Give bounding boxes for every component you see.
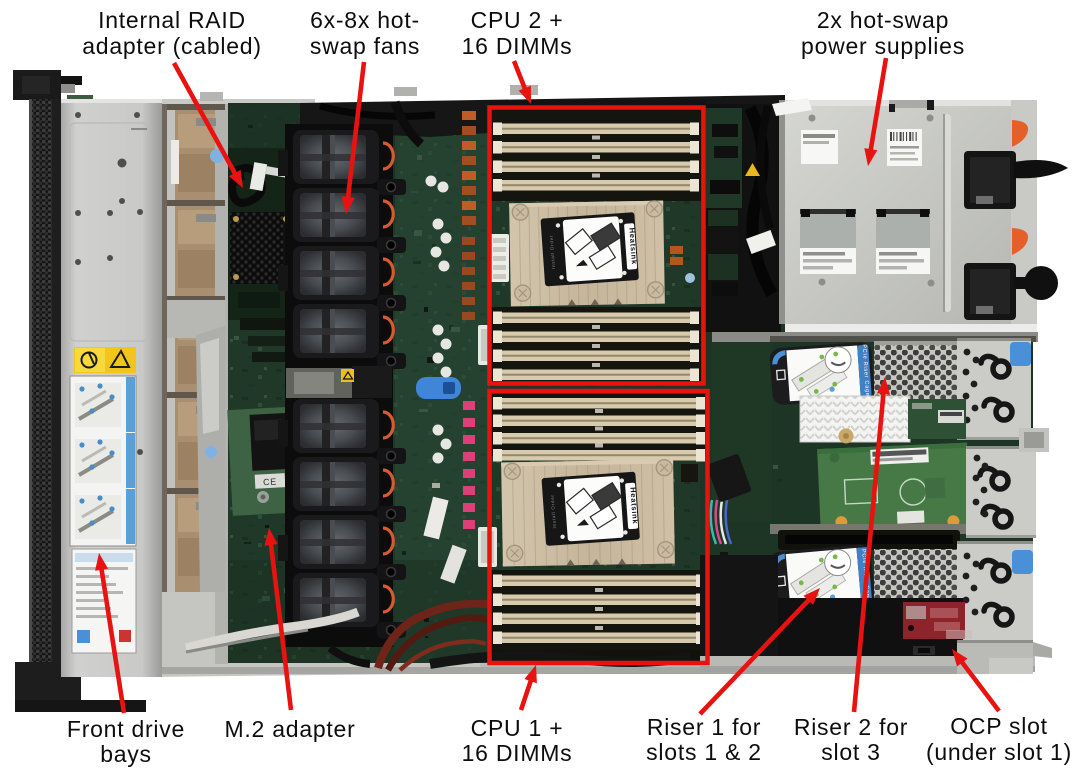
svg-text:OCP slot: OCP slot (950, 713, 1048, 739)
svg-text:CPU 2 +: CPU 2 + (471, 7, 564, 33)
svg-text:slots 1 & 2: slots 1 & 2 (646, 739, 762, 765)
svg-text:(under slot 1): (under slot 1) (926, 739, 1072, 765)
svg-text:Front drive: Front drive (67, 716, 185, 742)
svg-text:Internal RAID: Internal RAID (98, 7, 246, 33)
svg-text:Riser 1 for: Riser 1 for (647, 714, 761, 740)
svg-text:bays: bays (100, 741, 152, 767)
svg-text:16 DIMMs: 16 DIMMs (462, 33, 573, 59)
svg-text:6x-8x hot-: 6x-8x hot- (310, 7, 420, 33)
svg-text:adapter (cabled): adapter (cabled) (82, 33, 262, 59)
svg-text:swap fans: swap fans (310, 33, 420, 59)
svg-text:CE: CE (263, 477, 278, 488)
svg-text:2x hot-swap: 2x hot-swap (817, 7, 949, 33)
svg-text:M.2 adapter: M.2 adapter (225, 716, 356, 742)
svg-text:power supplies: power supplies (801, 33, 965, 59)
svg-text:16 DIMMs: 16 DIMMs (462, 740, 573, 766)
svg-text:slot 3: slot 3 (821, 739, 880, 765)
svg-text:Riser 2 for: Riser 2 for (794, 714, 908, 740)
svg-text:CPU 1 +: CPU 1 + (471, 715, 564, 741)
